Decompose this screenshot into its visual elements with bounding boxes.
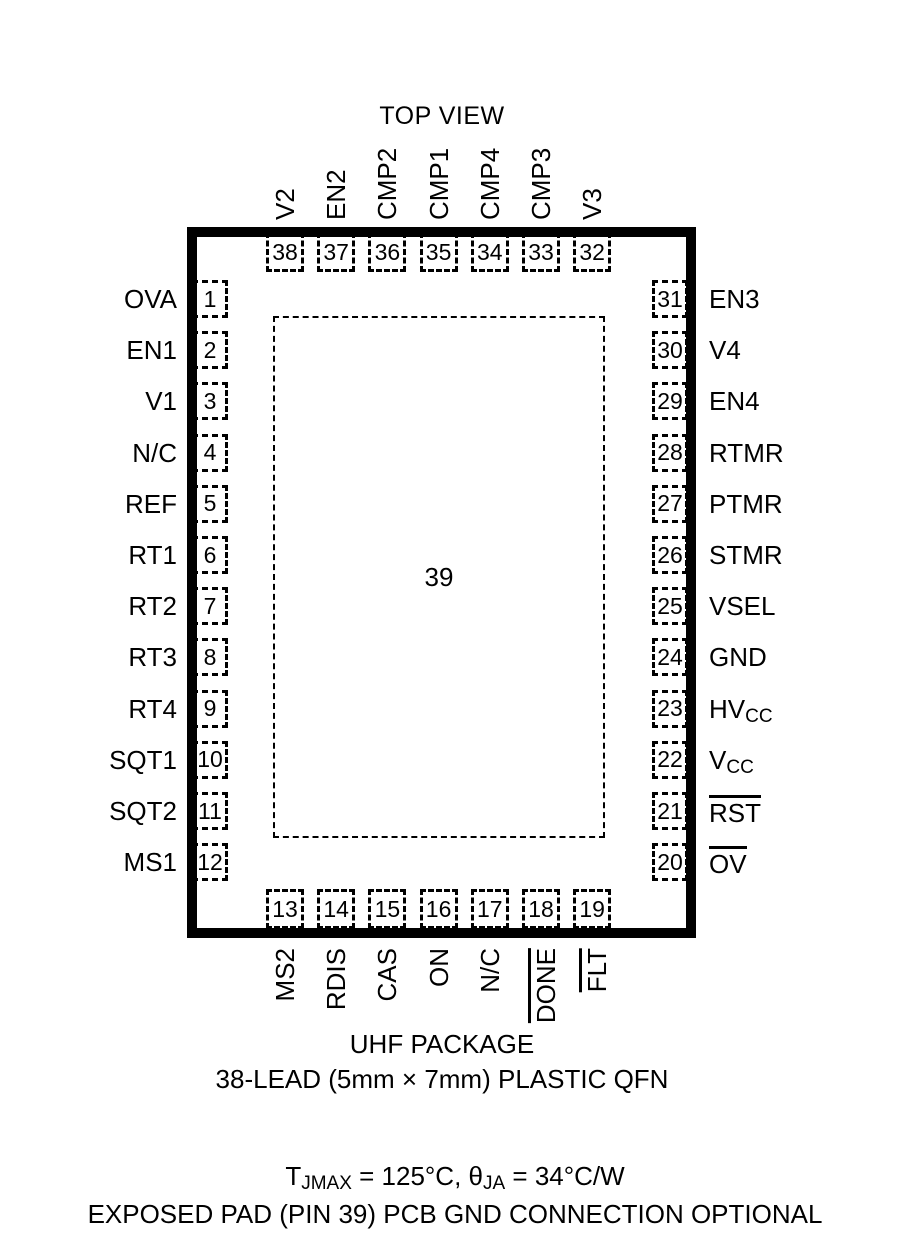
pin-10-label-text: SQT1 xyxy=(109,745,177,775)
package-caption-line2: 38-LEAD (5mm × 7mm) PLASTIC QFN xyxy=(142,1064,742,1094)
pin-37-label-text: EN2 xyxy=(321,169,351,220)
pin-11-label: SQT2 xyxy=(0,795,177,827)
pin-22-label: VCC xyxy=(709,744,904,776)
pin-13-number: 13 xyxy=(272,896,298,923)
pin-5-label-text: REF xyxy=(125,489,177,519)
pin-8-number: 8 xyxy=(204,644,217,671)
pin-4-label: N/C xyxy=(0,437,177,469)
pin-21-label-text: RST xyxy=(709,795,761,827)
pin-31: 31 xyxy=(652,280,688,318)
pin-5-label: REF xyxy=(0,488,177,520)
pin-7-label: RT2 xyxy=(0,590,177,622)
pin-23-label-text: HV xyxy=(709,694,745,724)
pin-21: 21 xyxy=(652,792,688,830)
pin-25: 25 xyxy=(652,587,688,625)
pin-5-number: 5 xyxy=(204,490,217,517)
pin-28-label: RTMR xyxy=(709,437,904,469)
thermal-note-segment-2: = 125°C, xyxy=(352,1161,469,1191)
pin-10-number: 10 xyxy=(197,746,223,773)
thermal-note-segment-4: JA xyxy=(483,1173,505,1194)
pin-35-number: 35 xyxy=(426,239,452,266)
pin-10: 10 xyxy=(192,741,228,779)
pin-1-label-text: OVA xyxy=(124,284,177,314)
exposed-pad: 39 xyxy=(273,316,605,838)
pin-3-number: 3 xyxy=(204,388,217,415)
pin-15-number: 15 xyxy=(375,896,401,923)
exposed-pad-number: 39 xyxy=(425,562,454,593)
pin-7: 7 xyxy=(192,587,228,625)
pin-14: 14 xyxy=(317,889,355,929)
pin-18-label: DONE xyxy=(528,948,560,1023)
pin-11-number: 11 xyxy=(198,798,222,825)
pin-3: 3 xyxy=(192,382,228,420)
pin-38-number: 38 xyxy=(272,239,298,266)
pin-28-number: 28 xyxy=(657,439,683,466)
pin-15: 15 xyxy=(368,889,406,929)
thermal-note-segment-1: JMAX xyxy=(301,1173,352,1194)
pin-31-label: EN3 xyxy=(709,283,904,315)
pin-4-number: 4 xyxy=(204,439,217,466)
pin-2-number: 2 xyxy=(204,337,217,364)
pin-12-label: MS1 xyxy=(0,846,177,878)
pin-37-label: EN2 xyxy=(323,169,349,220)
pin-5: 5 xyxy=(192,485,228,523)
pinout-diagram: TOP VIEW 39 1OVA2EN13V14N/C5REF6RT17RT28… xyxy=(0,0,910,1260)
pin-31-label-text: EN3 xyxy=(709,284,760,314)
pin-4: 4 xyxy=(192,434,228,472)
pin-27-label-text: PTMR xyxy=(709,489,783,519)
pin-21-label: RST xyxy=(709,795,904,827)
pin-32-label-text: V3 xyxy=(577,188,607,220)
pin-8-label: RT3 xyxy=(0,641,177,673)
pin-36-label: CMP2 xyxy=(374,148,400,220)
exposed-pad-note: EXPOSED PAD (PIN 39) PCB GND CONNECTION … xyxy=(55,1199,855,1229)
pin-13: 13 xyxy=(266,889,304,929)
pin-1-label: OVA xyxy=(0,283,177,315)
pin-14-label-text: RDIS xyxy=(321,948,351,1010)
pin-2-label-text: EN1 xyxy=(126,335,177,365)
top-view-label: TOP VIEW xyxy=(292,101,592,131)
pin-33-number: 33 xyxy=(528,239,554,266)
pin-17-label: N/C xyxy=(477,948,503,993)
pin-34: 34 xyxy=(471,232,509,272)
pin-15-label-text: CAS xyxy=(372,948,402,1001)
pin-30-number: 30 xyxy=(657,337,683,364)
pin-12-number: 12 xyxy=(197,849,223,876)
thermal-note-segment-3: θ xyxy=(469,1161,483,1191)
pin-24: 24 xyxy=(652,638,688,676)
pin-16-label: ON xyxy=(426,948,452,987)
pin-2-label: EN1 xyxy=(0,334,177,366)
pin-31-number: 31 xyxy=(657,286,683,313)
pin-15-label: CAS xyxy=(374,948,400,1001)
pin-18: 18 xyxy=(522,889,560,929)
pin-17-label-text: N/C xyxy=(475,948,505,993)
pin-6-label-text: RT1 xyxy=(128,540,177,570)
pin-13-label-text: MS2 xyxy=(270,948,300,1001)
pin-37-number: 37 xyxy=(323,239,349,266)
pin-19-number: 19 xyxy=(579,896,605,923)
pin-34-number: 34 xyxy=(477,239,503,266)
pin-27: 27 xyxy=(652,485,688,523)
pin-8-label-text: RT3 xyxy=(128,642,177,672)
pin-6-number: 6 xyxy=(204,542,217,569)
pin-9-number: 9 xyxy=(204,695,217,722)
pin-20: 20 xyxy=(652,843,688,881)
pin-12: 12 xyxy=(192,843,228,881)
pin-29-label-text: EN4 xyxy=(709,386,760,416)
pin-24-number: 24 xyxy=(657,644,683,671)
pin-36-number: 36 xyxy=(375,239,401,266)
pin-11-label-text: SQT2 xyxy=(109,796,177,826)
pin-1-number: 1 xyxy=(204,286,217,313)
pin-25-label: VSEL xyxy=(709,590,904,622)
pin-33-label: CMP3 xyxy=(528,148,554,220)
pin-3-label-text: V1 xyxy=(145,386,177,416)
pin-29-number: 29 xyxy=(657,388,683,415)
pin-25-number: 25 xyxy=(657,593,683,620)
pin-34-label: CMP4 xyxy=(477,148,503,220)
pin-11: 11 xyxy=(192,792,228,830)
pin-35: 35 xyxy=(420,232,458,272)
pin-22-label-text: V xyxy=(709,745,726,775)
pin-35-label: CMP1 xyxy=(426,148,452,220)
pin-38: 38 xyxy=(266,232,304,272)
pin-36-label-text: CMP2 xyxy=(372,148,402,220)
package-caption-line1: UHF PACKAGE xyxy=(142,1029,742,1059)
pin-7-label-text: RT2 xyxy=(128,591,177,621)
pin-9: 9 xyxy=(192,690,228,728)
pin-33-label-text: CMP3 xyxy=(526,148,556,220)
pin-26-label: STMR xyxy=(709,539,904,571)
pin-10-label: SQT1 xyxy=(0,744,177,776)
pin-19-label: FLT xyxy=(579,948,611,992)
pin-27-number: 27 xyxy=(657,490,683,517)
pin-28-label-text: RTMR xyxy=(709,438,784,468)
pin-6-label: RT1 xyxy=(0,539,177,571)
pin-21-number: 21 xyxy=(657,798,683,825)
pin-30-label: V4 xyxy=(709,334,904,366)
pin-20-number: 20 xyxy=(657,849,683,876)
pin-29: 29 xyxy=(652,382,688,420)
thermal-note: TJMAX = 125°C, θJA = 34°C/W xyxy=(55,1161,855,1199)
pin-25-label-text: VSEL xyxy=(709,591,776,621)
pin-16-label-text: ON xyxy=(424,948,454,987)
pin-23-label-subscript: CC xyxy=(745,706,772,727)
pin-34-label-text: CMP4 xyxy=(475,148,505,220)
pin-26-label-text: STMR xyxy=(709,540,783,570)
pin-16-number: 16 xyxy=(426,896,452,923)
pin-23-label: HVCC xyxy=(709,693,904,725)
pin-8: 8 xyxy=(192,638,228,676)
pin-38-label: V2 xyxy=(272,188,298,220)
pin-7-number: 7 xyxy=(204,593,217,620)
pin-20-label-text: OV xyxy=(709,846,747,878)
thermal-note-segment-5: = 34°C/W xyxy=(505,1161,625,1191)
pin-38-label-text: V2 xyxy=(270,188,300,220)
pin-32: 32 xyxy=(573,232,611,272)
pin-19-label-text: FLT xyxy=(579,948,611,992)
pin-32-label: V3 xyxy=(579,188,605,220)
pin-17: 17 xyxy=(471,889,509,929)
pin-17-number: 17 xyxy=(477,896,503,923)
pin-33: 33 xyxy=(522,232,560,272)
pin-9-label: RT4 xyxy=(0,693,177,725)
pin-24-label-text: GND xyxy=(709,642,767,672)
pin-23-number: 23 xyxy=(657,695,683,722)
pin-37: 37 xyxy=(317,232,355,272)
pin-30: 30 xyxy=(652,331,688,369)
pin-36: 36 xyxy=(368,232,406,272)
pin-13-label: MS2 xyxy=(272,948,298,1001)
pin-22-label-subscript: CC xyxy=(726,757,753,778)
pin-22-number: 22 xyxy=(657,746,683,773)
pin-26-number: 26 xyxy=(657,542,683,569)
pin-19: 19 xyxy=(573,889,611,929)
pin-14-number: 14 xyxy=(323,896,349,923)
pin-18-number: 18 xyxy=(528,896,554,923)
pin-1: 1 xyxy=(192,280,228,318)
pin-24-label: GND xyxy=(709,641,904,673)
pin-3-label: V1 xyxy=(0,385,177,417)
pin-30-label-text: V4 xyxy=(709,335,741,365)
pin-27-label: PTMR xyxy=(709,488,904,520)
pin-22: 22 xyxy=(652,741,688,779)
pin-4-label-text: N/C xyxy=(132,438,177,468)
pin-20-label: OV xyxy=(709,846,904,878)
pin-26: 26 xyxy=(652,536,688,574)
pin-14-label: RDIS xyxy=(323,948,349,1010)
pin-2: 2 xyxy=(192,331,228,369)
pin-28: 28 xyxy=(652,434,688,472)
pin-18-label-text: DONE xyxy=(528,948,560,1023)
pin-35-label-text: CMP1 xyxy=(424,148,454,220)
pin-32-number: 32 xyxy=(579,239,605,266)
pin-12-label-text: MS1 xyxy=(124,847,177,877)
pin-29-label: EN4 xyxy=(709,385,904,417)
pin-16: 16 xyxy=(420,889,458,929)
pin-6: 6 xyxy=(192,536,228,574)
thermal-note-segment-0: T xyxy=(285,1161,301,1191)
pin-23: 23 xyxy=(652,690,688,728)
pin-9-label-text: RT4 xyxy=(128,694,177,724)
